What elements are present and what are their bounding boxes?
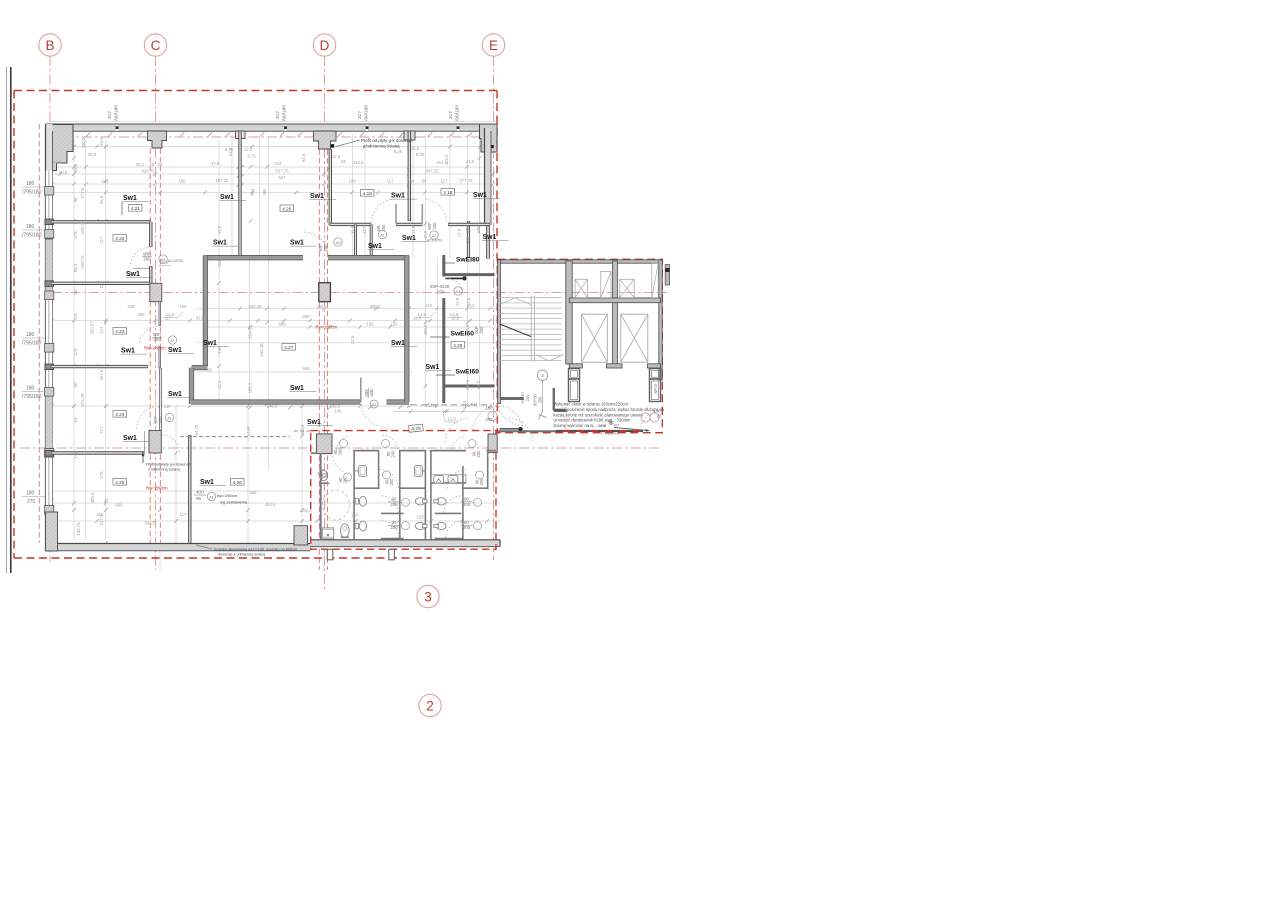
svg-text:504,49: 504,49 <box>248 304 262 309</box>
svg-text:54,75: 54,75 <box>145 521 156 526</box>
svg-text:317: 317 <box>107 111 113 119</box>
svg-text:4.24: 4.24 <box>115 412 125 417</box>
svg-text:12,5: 12,5 <box>411 225 416 234</box>
svg-text:180: 180 <box>26 491 35 497</box>
svg-text:100: 100 <box>351 513 359 518</box>
svg-text:345: 345 <box>476 226 481 234</box>
svg-text:Sw1: Sw1 <box>168 347 182 354</box>
svg-text:393,5: 393,5 <box>300 424 305 435</box>
svg-text:12,5: 12,5 <box>411 146 420 151</box>
svg-text:4.29: 4.29 <box>411 426 421 433</box>
svg-text:105,5: 105,5 <box>248 382 253 393</box>
svg-text:23: 23 <box>341 159 346 164</box>
svg-text:24: 24 <box>73 417 78 422</box>
svg-text:12,3: 12,3 <box>217 380 222 389</box>
svg-text:Ścianę wykonać na w... uwał: Ścianę wykonać na w... uwał <box>553 423 606 428</box>
svg-text:120: 120 <box>390 322 398 327</box>
svg-text:190: 190 <box>179 304 187 309</box>
svg-text:200: 200 <box>143 257 151 262</box>
svg-text:38: 38 <box>73 197 78 202</box>
svg-text:50: 50 <box>410 179 415 184</box>
svg-text:200: 200 <box>389 478 394 486</box>
svg-text:460,5: 460,5 <box>423 324 428 335</box>
svg-text:403,5: 403,5 <box>444 154 449 165</box>
svg-text:200: 200 <box>323 244 328 252</box>
svg-text:50: 50 <box>207 368 212 373</box>
svg-text:100: 100 <box>486 406 494 411</box>
svg-text:444,46: 444,46 <box>259 343 264 357</box>
svg-text:Ścianka aluminiowa na h=190, s: Ścianka aluminiowa na h=190, szeroko na … <box>214 547 298 552</box>
svg-text:219: 219 <box>416 515 424 520</box>
svg-text:Wykonać otwór w ścianie 150cmx: Wykonać otwór w ścianie 150cmx220cm <box>553 402 628 407</box>
svg-text:25,1: 25,1 <box>136 162 145 167</box>
svg-text:200: 200 <box>390 502 398 507</box>
svg-text:ACUSTIC: ACUSTIC <box>427 239 443 243</box>
svg-text:554: 554 <box>250 188 255 196</box>
svg-text:95: 95 <box>196 496 202 501</box>
svg-text:405,5: 405,5 <box>90 492 95 503</box>
svg-text:Sw1: Sw1 <box>391 193 405 200</box>
svg-text:567,75: 567,75 <box>275 169 289 174</box>
svg-text:609: 609 <box>115 503 123 508</box>
svg-text:180: 180 <box>26 224 35 230</box>
svg-text:Sw1: Sw1 <box>123 435 137 442</box>
svg-text:828,75: 828,75 <box>141 169 155 174</box>
svg-text:175: 175 <box>99 471 104 479</box>
svg-text:3: 3 <box>424 589 432 604</box>
svg-text:12,5: 12,5 <box>166 312 175 317</box>
svg-text:4.26: 4.26 <box>233 480 243 485</box>
svg-text:wg zestawienia: wg zestawienia <box>220 500 248 505</box>
svg-text:117: 117 <box>180 512 187 517</box>
svg-text:4.19: 4.19 <box>363 191 373 196</box>
svg-text:145: 145 <box>465 236 470 244</box>
svg-text:A2: A2 <box>456 290 460 294</box>
svg-text:117: 117 <box>99 426 104 433</box>
svg-text:906: 906 <box>302 366 310 371</box>
svg-text:A2: A2 <box>381 233 385 237</box>
svg-text:Rw=280cm: Rw=280cm <box>316 325 338 330</box>
svg-text:130,75: 130,75 <box>76 522 81 536</box>
svg-text:Sw1: Sw1 <box>473 192 487 199</box>
svg-text:64,5: 64,5 <box>53 160 62 165</box>
svg-text:12,5: 12,5 <box>350 335 355 344</box>
svg-text:396,9: 396,9 <box>465 324 470 335</box>
svg-text:175: 175 <box>73 348 78 356</box>
svg-text:Sw1: Sw1 <box>126 271 140 278</box>
svg-text:Sw1: Sw1 <box>310 193 324 200</box>
svg-text:Sw1: Sw1 <box>483 234 497 241</box>
svg-text:428: 428 <box>127 304 135 309</box>
svg-text:90: 90 <box>392 497 397 502</box>
svg-text:68,5: 68,5 <box>73 163 78 172</box>
svg-text:177,5: 177,5 <box>80 187 85 198</box>
svg-text:12,5: 12,5 <box>457 228 462 237</box>
svg-text:54,5: 54,5 <box>99 137 104 146</box>
svg-text:86,3: 86,3 <box>73 263 78 272</box>
svg-text:54,5: 54,5 <box>228 147 233 156</box>
svg-text:82,5: 82,5 <box>476 380 481 389</box>
svg-text:190: 190 <box>178 179 186 184</box>
svg-text:12,5: 12,5 <box>428 403 437 408</box>
svg-text:4.28: 4.28 <box>453 343 463 348</box>
svg-text:686: 686 <box>278 322 286 327</box>
svg-text:A1: A1 <box>209 495 213 499</box>
svg-text:200: 200 <box>437 290 445 295</box>
svg-text:200: 200 <box>432 222 437 230</box>
svg-text:348,5: 348,5 <box>370 304 381 309</box>
svg-text:Profil od płyty g-k dosunąć: Profil od płyty g-k dosunąć <box>361 138 413 143</box>
svg-text:Sw1: Sw1 <box>307 419 321 426</box>
svg-text:b/p=190cm: b/p=190cm <box>217 493 238 498</box>
svg-text:A2: A2 <box>432 234 436 238</box>
svg-text:/795/180: /795/180 <box>22 233 42 239</box>
svg-text:/90/180: /90/180 <box>364 105 370 121</box>
svg-text:40,5: 40,5 <box>423 230 428 239</box>
svg-text:35: 35 <box>654 384 658 388</box>
svg-text:Rw=280cm: Rw=280cm <box>146 486 168 491</box>
svg-text:117: 117 <box>387 179 394 184</box>
svg-text:157,25: 157,25 <box>215 178 229 183</box>
svg-text:A3: A3 <box>161 258 165 262</box>
svg-text:35,5: 35,5 <box>88 152 97 157</box>
svg-text:200: 200 <box>479 326 484 334</box>
svg-text:Umieścić dwuteownik h200 stęż.: Umieścić dwuteownik h200 stęż... 700mm <box>553 418 631 423</box>
svg-text:Sw1: Sw1 <box>213 240 227 247</box>
svg-text:353: 353 <box>316 304 324 309</box>
svg-text:117: 117 <box>441 179 448 184</box>
svg-text:90P–EI30: 90P–EI30 <box>430 284 450 289</box>
svg-text:4.18: 4.18 <box>443 190 453 195</box>
svg-text:Sw1: Sw1 <box>121 348 135 355</box>
svg-text:18: 18 <box>150 162 155 167</box>
svg-text:200: 200 <box>538 396 543 404</box>
svg-text:317: 317 <box>448 111 454 119</box>
svg-text:4.25: 4.25 <box>115 480 125 485</box>
svg-text:24,5: 24,5 <box>466 159 475 164</box>
svg-text:177,75: 177,75 <box>459 178 473 183</box>
svg-text:345: 345 <box>465 226 470 234</box>
svg-text:12,5: 12,5 <box>447 417 456 422</box>
svg-text:S: S <box>609 421 613 427</box>
svg-text:106,5: 106,5 <box>217 256 222 267</box>
svg-text:167,5: 167,5 <box>99 369 104 380</box>
svg-text:SwEI60: SwEI60 <box>456 369 480 376</box>
svg-text:200: 200 <box>153 337 161 342</box>
svg-text:180: 180 <box>348 179 356 184</box>
svg-text:200: 200 <box>391 450 396 458</box>
svg-text:140: 140 <box>425 303 433 308</box>
svg-text:41,5: 41,5 <box>196 316 205 321</box>
svg-text:20: 20 <box>657 414 662 419</box>
svg-text:200: 200 <box>364 389 369 397</box>
svg-text:375,29: 375,29 <box>80 393 85 407</box>
svg-text:200: 200 <box>158 416 163 424</box>
svg-text:12,5: 12,5 <box>332 154 341 159</box>
svg-text:Rw=280cm: Rw=280cm <box>144 346 166 351</box>
svg-text:90: 90 <box>464 520 469 525</box>
svg-text:200: 200 <box>486 417 494 422</box>
svg-text:12,5: 12,5 <box>466 297 471 306</box>
svg-text:317: 317 <box>275 111 281 119</box>
svg-text:/90/180: /90/180 <box>455 105 461 121</box>
svg-text:175: 175 <box>73 231 78 239</box>
svg-text:328,71: 328,71 <box>80 221 85 235</box>
svg-text:180: 180 <box>26 386 35 392</box>
svg-text:317: 317 <box>357 111 363 119</box>
svg-text:A1: A1 <box>170 339 174 343</box>
svg-text:24: 24 <box>73 313 78 318</box>
svg-text:369: 369 <box>262 188 267 196</box>
svg-text:90: 90 <box>464 497 469 502</box>
svg-text:A3: A3 <box>372 403 376 407</box>
svg-text:Sw1: Sw1 <box>391 340 405 347</box>
svg-text:/795/180: /795/180 <box>22 190 42 196</box>
svg-text:25: 25 <box>158 162 163 167</box>
svg-text:Sw1: Sw1 <box>200 479 214 486</box>
svg-text:12,5: 12,5 <box>244 147 253 152</box>
svg-text:L=m2200cm: L=m2200cm <box>601 432 620 436</box>
svg-text:400: 400 <box>196 490 204 495</box>
svg-text:148,5: 148,5 <box>267 404 278 409</box>
svg-text:556: 556 <box>249 490 257 495</box>
svg-text:200: 200 <box>525 394 530 401</box>
svg-text:z odmienną ścianą: z odmienną ścianą <box>363 143 400 148</box>
svg-text:Profil od płyty g-k dosunąć: Profil od płyty g-k dosunąć <box>146 463 191 467</box>
svg-text:4.27: 4.27 <box>284 345 294 350</box>
svg-text:180: 180 <box>26 181 35 187</box>
svg-text:453,5: 453,5 <box>265 502 276 507</box>
svg-text:Sw1: Sw1 <box>368 243 382 250</box>
svg-text:/795/180: /795/180 <box>22 394 42 400</box>
svg-text:168,75: 168,75 <box>80 255 85 269</box>
svg-text:/795/180: /795/180 <box>22 341 42 347</box>
svg-text:4.23: 4.23 <box>115 329 125 334</box>
svg-text:99,3: 99,3 <box>99 195 104 204</box>
svg-text:E: E <box>489 38 498 53</box>
svg-text:100,0: 100,0 <box>81 137 86 148</box>
svg-text:Sw1: Sw1 <box>123 195 137 202</box>
svg-text:2: 2 <box>426 698 434 713</box>
svg-text:C: C <box>151 38 161 53</box>
svg-text:443: 443 <box>101 179 109 184</box>
svg-text:z odmienną ścianą: z odmienną ścianą <box>148 467 181 471</box>
svg-text:140: 140 <box>163 404 171 409</box>
svg-text:37,5: 37,5 <box>211 161 220 166</box>
svg-text:A3: A3 <box>336 241 340 245</box>
svg-text:200: 200 <box>338 448 343 456</box>
svg-text:567: 567 <box>278 175 286 180</box>
svg-text:/90/180: /90/180 <box>114 105 120 121</box>
svg-text:117: 117 <box>362 226 367 233</box>
svg-text:347,25: 347,25 <box>425 169 439 174</box>
svg-text:12,5: 12,5 <box>450 312 459 317</box>
svg-text:175: 175 <box>73 451 78 459</box>
svg-text:8,25: 8,25 <box>416 152 425 157</box>
svg-text:117: 117 <box>99 326 104 333</box>
svg-text:Ustalić położenie spodu nadpro: Ustalić położenie spodu nadproża ,wykuć … <box>553 407 664 412</box>
svg-text:14,7: 14,7 <box>614 423 620 427</box>
svg-text:60: 60 <box>73 289 78 294</box>
svg-text:906: 906 <box>302 314 310 319</box>
svg-text:Sw1: Sw1 <box>290 385 304 392</box>
svg-text:4.20: 4.20 <box>282 206 292 211</box>
svg-text:SwEI80: SwEI80 <box>456 257 480 264</box>
svg-text:D: D <box>320 38 330 53</box>
svg-text:90: 90 <box>392 520 397 525</box>
svg-text:54,5: 54,5 <box>301 153 306 162</box>
svg-text:ACUSTIC: ACUSTIC <box>168 259 184 263</box>
svg-text:200: 200 <box>390 525 398 530</box>
svg-text:Sw1: Sw1 <box>168 391 182 398</box>
svg-text:117: 117 <box>99 236 104 243</box>
svg-text:A1: A1 <box>167 416 171 420</box>
svg-text:Sw1: Sw1 <box>290 240 304 247</box>
svg-text:390,5: 390,5 <box>465 379 470 390</box>
svg-text:102,2: 102,2 <box>301 508 312 513</box>
svg-text:Sw1: Sw1 <box>426 364 440 371</box>
svg-text:12,5: 12,5 <box>462 400 467 409</box>
svg-text:12,5: 12,5 <box>418 312 427 317</box>
svg-text:200: 200 <box>463 525 471 530</box>
svg-text:50: 50 <box>422 179 427 184</box>
svg-text:149: 149 <box>217 346 222 354</box>
svg-text:54,75: 54,75 <box>194 424 199 435</box>
svg-text:4.22: 4.22 <box>115 236 125 241</box>
svg-text:469: 469 <box>137 312 145 317</box>
svg-text:200: 200 <box>476 450 481 458</box>
svg-text:8,75: 8,75 <box>247 154 256 159</box>
svg-text:100: 100 <box>334 409 342 414</box>
svg-text:149: 149 <box>246 426 251 434</box>
svg-text:Sw1: Sw1 <box>402 235 416 242</box>
svg-text:dosunąć z odmienną ścianą: dosunąć z odmienną ścianą <box>218 552 266 556</box>
svg-text:70: 70 <box>473 402 478 407</box>
svg-text:217,7: 217,7 <box>99 514 104 525</box>
svg-text:312: 312 <box>274 161 282 166</box>
svg-text:SwEI60: SwEI60 <box>451 331 475 338</box>
svg-text:Sw1: Sw1 <box>220 194 234 201</box>
svg-text:180: 180 <box>26 332 35 338</box>
svg-text:B: B <box>45 38 54 53</box>
svg-text:634,86: 634,86 <box>248 325 253 339</box>
svg-text:4.21: 4.21 <box>131 206 141 211</box>
svg-text:/90/180: /90/180 <box>282 105 288 121</box>
svg-text:12,5: 12,5 <box>455 297 460 306</box>
svg-text:117: 117 <box>99 281 104 288</box>
svg-text:313,5: 313,5 <box>353 160 364 165</box>
svg-text:11,5: 11,5 <box>350 225 355 234</box>
svg-text:100: 100 <box>366 322 374 327</box>
svg-text:Sw1: Sw1 <box>203 340 217 347</box>
svg-text:60: 60 <box>73 382 78 387</box>
svg-text:270: 270 <box>27 499 36 505</box>
svg-text:200: 200 <box>463 502 471 507</box>
svg-text:353,57: 353,57 <box>90 321 95 335</box>
svg-text:12,5: 12,5 <box>217 225 222 234</box>
svg-text:każdą stronę niż szerokość pla: każdą stronę niż szerokość planowanego o… <box>553 412 643 417</box>
svg-text:20,5: 20,5 <box>59 170 68 175</box>
svg-text:8,25: 8,25 <box>394 149 403 154</box>
